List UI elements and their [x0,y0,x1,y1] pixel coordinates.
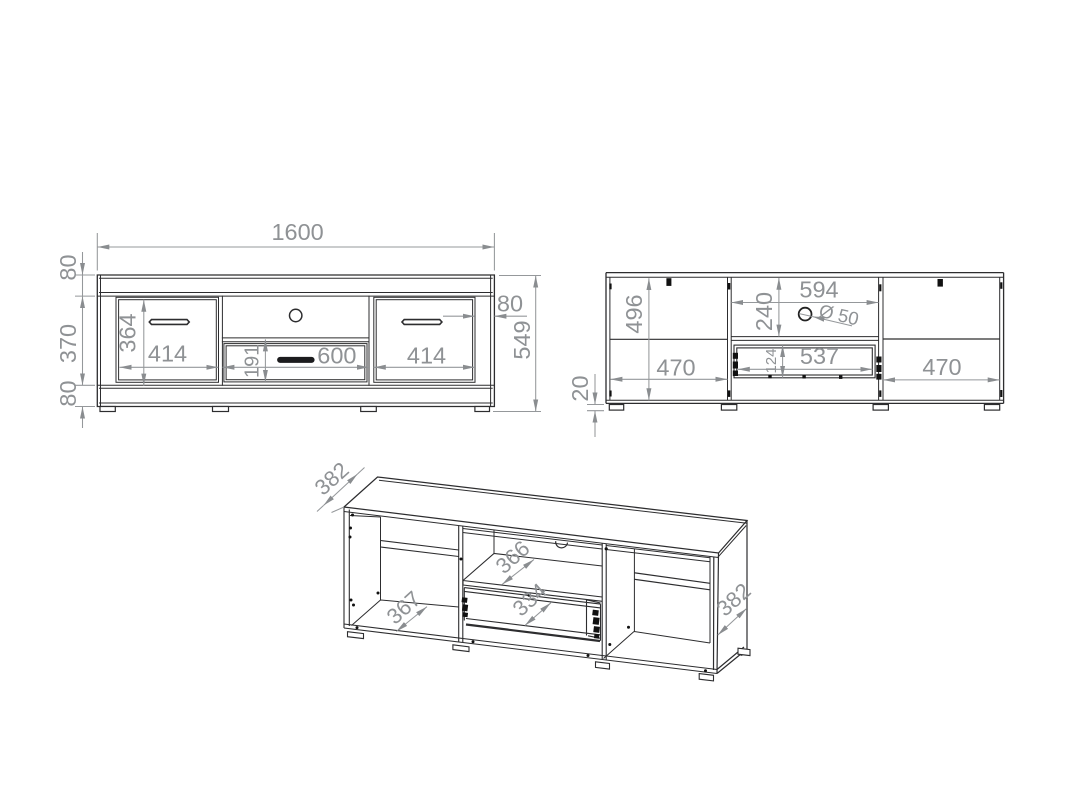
svg-text:366: 366 [491,536,535,579]
svg-text:370: 370 [55,324,81,363]
svg-text:334: 334 [508,578,552,621]
svg-text:470: 470 [922,354,961,380]
svg-text:496: 496 [621,294,647,333]
svg-text:240: 240 [751,292,777,331]
svg-text:594: 594 [799,277,838,303]
svg-text:382: 382 [310,457,354,500]
svg-text:80: 80 [55,380,81,406]
svg-text:600: 600 [317,343,356,369]
svg-text:191: 191 [241,345,263,378]
svg-text:1600: 1600 [271,219,323,245]
svg-text:80: 80 [497,291,523,317]
svg-text:364: 364 [115,313,141,352]
svg-text:414: 414 [407,343,446,369]
svg-text:80: 80 [55,254,81,280]
svg-text:Ø 50: Ø 50 [817,300,861,329]
svg-text:549: 549 [509,320,535,359]
svg-text:537: 537 [800,343,839,369]
svg-text:470: 470 [656,355,695,381]
svg-text:367: 367 [382,586,426,629]
svg-text:20: 20 [567,375,593,401]
svg-text:414: 414 [148,341,187,367]
svg-text:124: 124 [763,348,780,373]
